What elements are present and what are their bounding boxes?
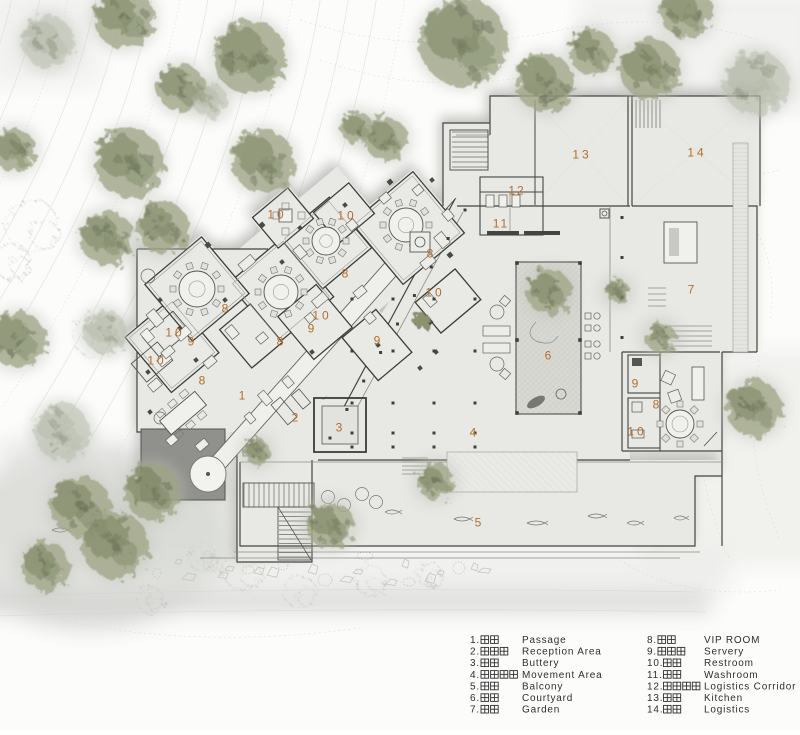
svg-text:8: 8	[427, 247, 434, 261]
svg-text:Reception Area: Reception Area	[522, 647, 602, 658]
svg-text:4: 4	[470, 426, 477, 440]
svg-text:8: 8	[222, 302, 229, 316]
svg-text:2.: 2.	[470, 647, 480, 658]
svg-text:10: 10	[267, 208, 286, 222]
svg-text:5: 5	[475, 516, 482, 530]
svg-text:Servery: Servery	[704, 647, 744, 658]
svg-text:10: 10	[165, 326, 184, 340]
svg-text:3.: 3.	[470, 658, 480, 669]
svg-text:11.: 11.	[647, 670, 663, 681]
svg-text:7: 7	[688, 283, 695, 297]
svg-text:1: 1	[239, 389, 246, 403]
svg-text:Logistics: Logistics	[704, 705, 750, 716]
svg-text:1.: 1.	[470, 635, 480, 646]
svg-text:13.: 13.	[647, 693, 663, 704]
svg-text:8.: 8.	[647, 635, 657, 646]
svg-text:10: 10	[425, 286, 444, 300]
svg-text:10: 10	[337, 209, 356, 223]
svg-text:9: 9	[308, 322, 315, 336]
svg-text:Garden: Garden	[522, 705, 560, 716]
svg-text:Passage: Passage	[522, 635, 567, 646]
svg-text:14.: 14.	[647, 705, 663, 716]
svg-text:10.: 10.	[647, 658, 663, 669]
svg-text:4.: 4.	[470, 670, 480, 681]
svg-text:Balcony: Balcony	[522, 681, 563, 692]
svg-text:5.: 5.	[470, 681, 480, 692]
svg-text:8: 8	[342, 267, 349, 281]
svg-text:12.: 12.	[647, 681, 663, 692]
svg-text:8: 8	[653, 398, 660, 412]
svg-text:11: 11	[493, 217, 509, 231]
svg-text:6.: 6.	[470, 693, 480, 704]
svg-text:10: 10	[627, 425, 646, 439]
svg-text:10: 10	[312, 309, 331, 323]
svg-text:6: 6	[545, 349, 552, 363]
svg-text:9: 9	[374, 334, 381, 348]
svg-text:Kitchen: Kitchen	[704, 693, 743, 704]
svg-text:Courtyard: Courtyard	[522, 693, 573, 704]
svg-text:Logistics Corridor: Logistics Corridor	[704, 681, 796, 692]
svg-text:Movement Area: Movement Area	[522, 670, 602, 681]
svg-text:VIP ROOM: VIP ROOM	[704, 635, 760, 646]
svg-text:13: 13	[572, 148, 591, 162]
svg-text:9.: 9.	[647, 647, 657, 658]
svg-text:12: 12	[508, 184, 525, 198]
svg-text:Washroom: Washroom	[704, 670, 758, 681]
svg-text:8: 8	[199, 374, 206, 388]
svg-text:10: 10	[147, 354, 166, 368]
svg-text:Restroom: Restroom	[704, 658, 754, 669]
svg-text:7.: 7.	[470, 705, 480, 716]
svg-text:3: 3	[336, 421, 343, 435]
svg-text:9: 9	[632, 377, 639, 391]
svg-text:8: 8	[277, 335, 284, 349]
svg-text:14: 14	[687, 146, 706, 160]
svg-text:Buttery: Buttery	[522, 658, 559, 669]
svg-text:2: 2	[292, 411, 299, 425]
svg-text:9: 9	[188, 335, 195, 349]
